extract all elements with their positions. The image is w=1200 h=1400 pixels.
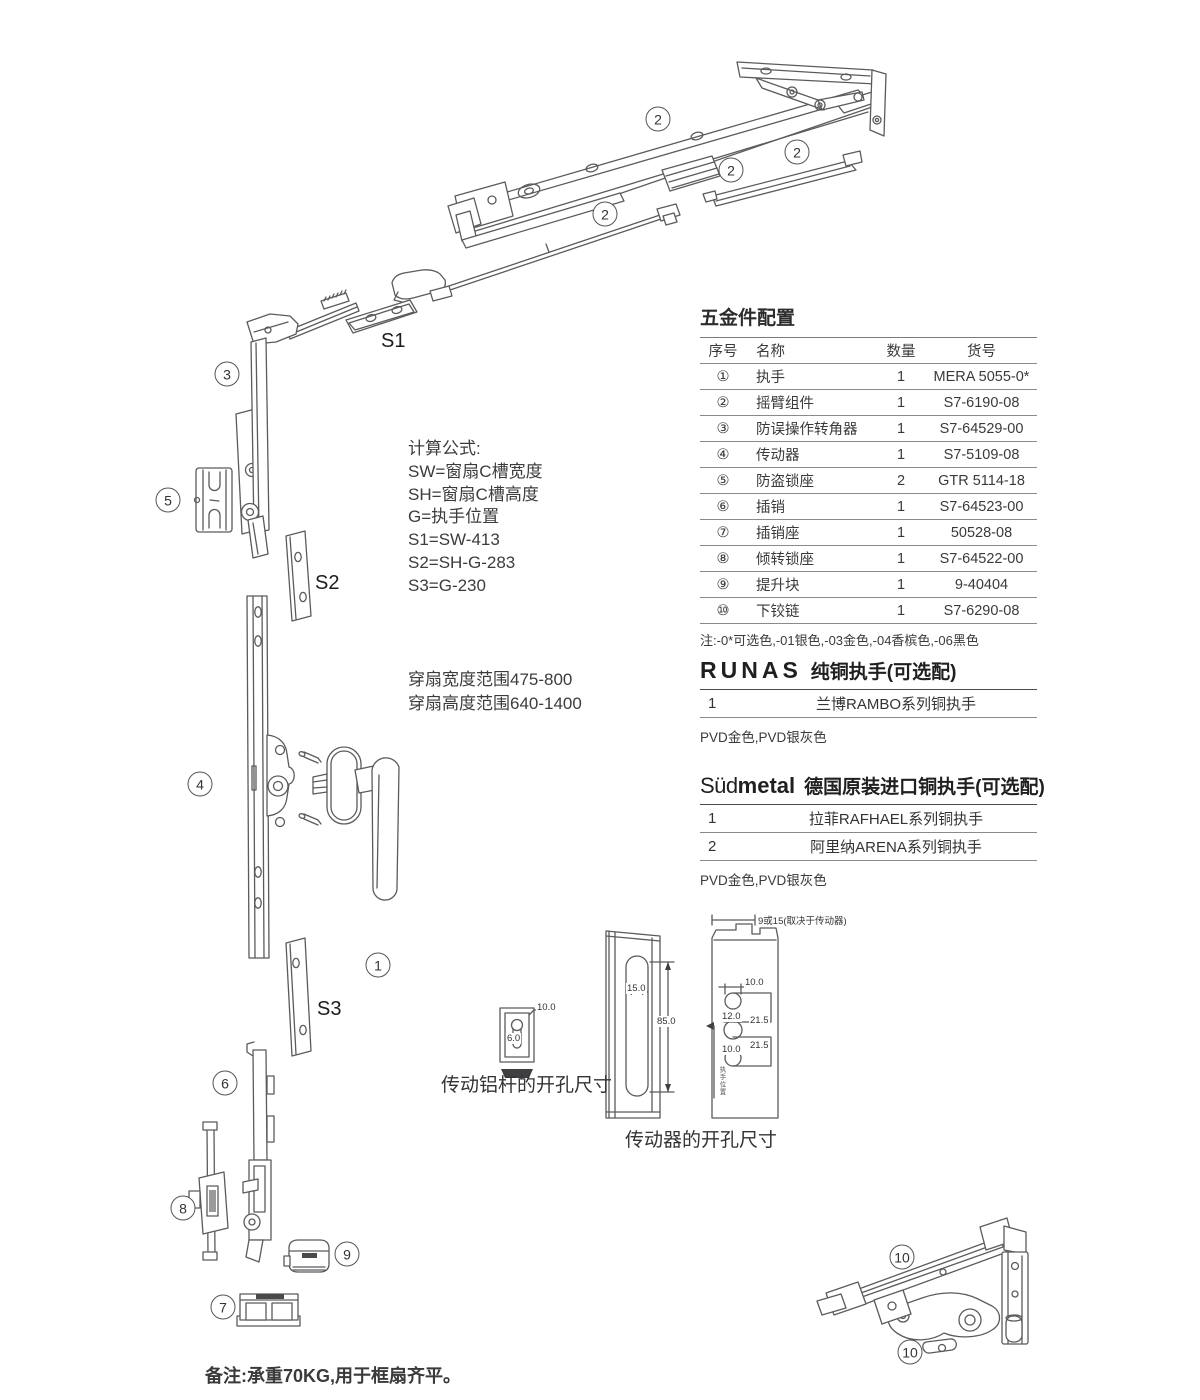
row-code: 9-40404: [926, 572, 1037, 598]
s3-label: S3: [317, 998, 341, 1021]
corner-drive-drawing: [236, 290, 359, 558]
rod-drill-caption: 传动铝杆的开孔尺寸: [441, 1070, 612, 1097]
row-no: 2: [700, 838, 755, 855]
part-label-bolt: 6: [213, 1071, 238, 1096]
row-name: 提升块: [746, 572, 876, 598]
table-row: ⑥插销1S7-64523-00: [700, 494, 1037, 520]
hardware-spec-sheet: 2 2 2 2 3 5 4 1 6 8 9 7 10 10 S1 S2 S3 计…: [0, 0, 1200, 1400]
row-code: S7-6290-08: [926, 598, 1037, 624]
sudmetal-row: 1 拉菲RAFHAEL系列铜执手: [700, 805, 1037, 833]
load-capacity-note: 备注:承重70KG,用于框扇齐平。: [205, 1362, 461, 1388]
color-options-note: 注:-0*可选色,-01银色,-03金色,-04香槟色,-06黑色: [700, 624, 1037, 649]
s2-label: S2: [315, 572, 339, 595]
row-name: 阿里纳ARENA系列铜执手: [755, 836, 1037, 857]
dim-bottom-hole: 10.0: [721, 1044, 742, 1055]
runas-logo: RUNAS: [700, 657, 802, 684]
row-no: ⑦: [700, 520, 746, 546]
formula-line: S2=SH-G-283: [408, 552, 543, 575]
part-label-lift-block: 9: [335, 1242, 360, 1267]
row-no: 1: [700, 810, 755, 827]
table-row: ④传动器1S7-5109-08: [700, 442, 1037, 468]
table-row: ⑧倾转锁座1S7-64522-00: [700, 546, 1037, 572]
row-name: 拉菲RAFHAEL系列铜执手: [755, 808, 1037, 829]
dim-slot-height: 85.0: [656, 1016, 677, 1027]
table-row: ⑩下铰链1S7-6290-08: [700, 598, 1037, 624]
col-header-code: 货号: [926, 338, 1037, 364]
part-label-swing-arm: 2: [646, 107, 671, 132]
part-label-bolt-keeper: 7: [211, 1295, 236, 1320]
row-name: 下铰链: [746, 598, 876, 624]
gear-drill-caption: 传动器的开孔尺寸: [625, 1125, 777, 1152]
part-label-handle: 1: [366, 953, 391, 978]
part-label-bottom-hinge: 10: [890, 1245, 915, 1270]
part-label-drive-bar: 4: [188, 772, 213, 797]
formula-line: S3=G-230: [408, 575, 543, 598]
row-no: ①: [700, 364, 746, 390]
row-name: 摇臂组件: [746, 390, 876, 416]
row-name: 插销: [746, 494, 876, 520]
row-no: ⑨: [700, 572, 746, 598]
row-no: ⑩: [700, 598, 746, 624]
table-row: ①执手1MERA 5055-0*: [700, 364, 1037, 390]
table-row: ②摇臂组件1S7-6190-08: [700, 390, 1037, 416]
s1-label: S1: [381, 330, 405, 353]
sudmetal-section-title: Süd metal 德国原装进口铜执手(可选配): [700, 772, 1037, 805]
bottom-hinge-lower-drawing: [874, 1290, 1000, 1353]
row-qty: 1: [876, 364, 926, 390]
row-no: ④: [700, 442, 746, 468]
row-code: GTR 5114-18: [926, 468, 1037, 494]
row-code: MERA 5055-0*: [926, 364, 1037, 390]
row-no: ⑤: [700, 468, 746, 494]
part-label-keeper: 5: [156, 488, 181, 513]
bolt-rod-drawing: [243, 1042, 274, 1262]
dim-mid-hole: 12.0: [721, 1011, 742, 1022]
hardware-table-title: 五金件配置: [700, 303, 1037, 337]
anti-theft-keeper-drawing: [195, 468, 233, 532]
row-name: 防盗锁座: [746, 468, 876, 494]
row-qty: 1: [876, 416, 926, 442]
row-qty: 1: [876, 442, 926, 468]
runas-row: 1 兰博RAMBO系列铜执手: [700, 690, 1037, 718]
sudmetal-logo-light: Süd: [700, 773, 738, 799]
col-header-no: 序号: [700, 338, 746, 364]
window-handle-drawing: [313, 747, 399, 900]
dim-step-a: 21.5: [749, 1015, 770, 1026]
formula-line: SW=窗扇C槽宽度: [408, 461, 543, 484]
row-no: ②: [700, 390, 746, 416]
s3-plate-drawing: [286, 938, 311, 1056]
row-name: 执手: [746, 364, 876, 390]
sudmetal-logo-bold: metal: [738, 773, 795, 799]
row-name: 传动器: [746, 442, 876, 468]
sash-height-range: 穿扇高度范围640-1400: [408, 692, 582, 716]
swing-arm-assembly-drawing: [392, 62, 886, 302]
row-code: S7-64523-00: [926, 494, 1037, 520]
row-qty: 2: [876, 468, 926, 494]
row-name: 兰博RAMBO系列铜执手: [755, 693, 1037, 714]
sudmetal-row: 2 阿里纳ARENA系列铜执手: [700, 833, 1037, 861]
dim-handle-position: 执手位置: [716, 1066, 726, 1096]
row-name: 防误操作转角器: [746, 416, 876, 442]
table-row: ③防误操作转角器1S7-64529-00: [700, 416, 1037, 442]
row-no: 1: [700, 695, 755, 712]
dim-top-hole: 10.0: [744, 977, 765, 988]
row-qty: 1: [876, 520, 926, 546]
bolt-keeper-drawing: [237, 1294, 300, 1326]
hardware-config-section: 五金件配置 序号 名称 数量 货号 ①执手1MERA 5055-0* ②摇臂组件…: [700, 303, 1037, 649]
table-row: ⑤防盗锁座2GTR 5114-18: [700, 468, 1037, 494]
row-no: ⑥: [700, 494, 746, 520]
sash-width-range: 穿扇宽度范围475-800: [408, 668, 582, 692]
table-header-row: 序号 名称 数量 货号: [700, 338, 1037, 364]
part-label-swing-arm: 2: [593, 202, 618, 227]
formulas-title: 计算公式:: [408, 438, 543, 461]
table-row: ⑨提升块19-40404: [700, 572, 1037, 598]
drive-bar-drawing: [247, 596, 294, 958]
dim-slot-width: 15.0: [626, 983, 647, 994]
part-label-corner-drive: 3: [215, 362, 240, 387]
runas-title-text: 纯铜执手(可选配): [811, 657, 957, 684]
formula-line: G=执手位置: [408, 506, 543, 529]
tilt-keeper-drawing: [189, 1122, 228, 1260]
row-qty: 1: [876, 546, 926, 572]
row-qty: 1: [876, 598, 926, 624]
col-header-name: 名称: [746, 338, 876, 364]
sash-range-block: 穿扇宽度范围475-800 穿扇高度范围640-1400: [408, 668, 582, 715]
row-code: S7-64529-00: [926, 416, 1037, 442]
row-qty: 1: [876, 494, 926, 520]
row-no: ③: [700, 416, 746, 442]
part-label-tilt-keeper: 8: [171, 1196, 196, 1221]
row-code: S7-5109-08: [926, 442, 1037, 468]
dim-rod-slot: 6.0: [506, 1033, 521, 1044]
table-row: ⑦插销座150528-08: [700, 520, 1037, 546]
bottom-hinge-post-drawing: [1002, 1226, 1028, 1344]
hardware-table: 序号 名称 数量 货号 ①执手1MERA 5055-0* ②摇臂组件1S7-61…: [700, 337, 1037, 624]
formulas-block: 计算公式: SW=窗扇C槽宽度 SH=窗扇C槽高度 G=执手位置 S1=SW-4…: [408, 438, 543, 598]
row-name: 插销座: [746, 520, 876, 546]
formula-line: S1=SW-413: [408, 529, 543, 552]
col-header-qty: 数量: [876, 338, 926, 364]
runas-section-title: RUNAS 纯铜执手(可选配): [700, 657, 1037, 690]
formula-line: SH=窗扇C槽高度: [408, 484, 543, 507]
runas-option-section: RUNAS 纯铜执手(可选配) 1 兰博RAMBO系列铜执手 PVD金色,PVD…: [700, 657, 1037, 746]
part-label-swing-arm: 2: [785, 140, 810, 165]
row-code: S7-6190-08: [926, 390, 1037, 416]
row-qty: 1: [876, 572, 926, 598]
row-qty: 1: [876, 390, 926, 416]
sudmetal-title-text: 德国原装进口铜执手(可选配): [804, 772, 1045, 799]
dim-rod-width: 10.0: [536, 1002, 557, 1013]
row-name: 倾转锁座: [746, 546, 876, 572]
dim-offset: 9或15(取决于传动器): [757, 913, 848, 927]
runas-finish-note: PVD金色,PVD银灰色: [700, 718, 1037, 746]
row-code: S7-64522-00: [926, 546, 1037, 572]
sudmetal-option-section: Süd metal 德国原装进口铜执手(可选配) 1 拉菲RAFHAEL系列铜执…: [700, 772, 1037, 889]
part-label-swing-arm: 2: [719, 158, 744, 183]
part-label-bottom-hinge: 10: [898, 1340, 923, 1365]
row-code: 50528-08: [926, 520, 1037, 546]
sudmetal-finish-note: PVD金色,PVD银灰色: [700, 861, 1037, 889]
s2-plate-drawing: [286, 531, 311, 621]
row-no: ⑧: [700, 546, 746, 572]
lift-block-drawing: [284, 1240, 329, 1272]
dim-step-b: 21.5: [749, 1040, 770, 1051]
